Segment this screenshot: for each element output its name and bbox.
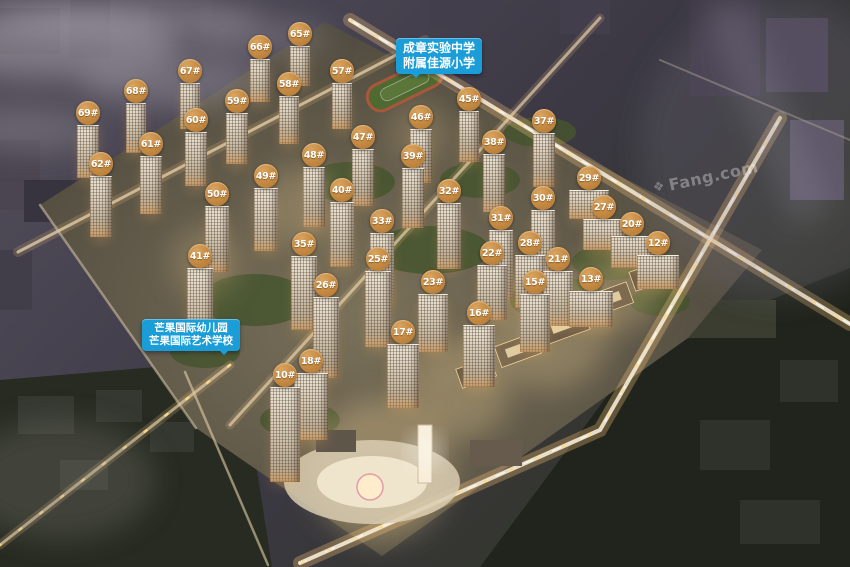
building-marker-46: 46#	[409, 105, 433, 129]
building-marker-66: 66#	[248, 35, 272, 59]
building-marker-38: 38#	[482, 130, 506, 154]
callout-school-west: 芒果国际幼儿园 芒果国际艺术学校	[142, 319, 240, 351]
building-marker-15: 15#	[523, 270, 547, 294]
building-marker-68: 68#	[124, 79, 148, 103]
building-marker-32: 32#	[437, 179, 461, 203]
building-marker-48: 48#	[302, 143, 326, 167]
building-marker-29: 29#	[577, 166, 601, 190]
building-marker-25: 25#	[366, 247, 390, 271]
building-marker-57: 57#	[330, 59, 354, 83]
building-marker-67: 67#	[178, 59, 202, 83]
masterplan-rendering[interactable]: 65#66#67#57#58#68#45#59#69#46#60#37#47#3…	[0, 0, 850, 567]
building-marker-35: 35#	[292, 232, 316, 256]
building-marker-28: 28#	[518, 231, 542, 255]
building-marker-58: 58#	[277, 72, 301, 96]
building-marker-12: 12#	[646, 231, 670, 255]
building-marker-21: 21#	[546, 247, 570, 271]
building-marker-60: 60#	[184, 108, 208, 132]
fang-logo-icon: ❖	[652, 179, 667, 196]
building-marker-17: 17#	[391, 320, 415, 344]
building-marker-40: 40#	[330, 178, 354, 202]
building-marker-27: 27#	[592, 195, 616, 219]
callout-line: 成章实验中学	[403, 41, 475, 56]
building-marker-50: 50#	[205, 182, 229, 206]
callout-line: 芒果国际幼儿园	[149, 322, 233, 335]
building-marker-18: 18#	[299, 349, 323, 373]
building-marker-65: 65#	[288, 22, 312, 46]
building-marker-16: 16#	[467, 301, 491, 325]
building-marker-23: 23#	[421, 270, 445, 294]
building-marker-20: 20#	[620, 212, 644, 236]
building-marker-39: 39#	[401, 144, 425, 168]
building-marker-26: 26#	[314, 273, 338, 297]
building-marker-30: 30#	[531, 186, 555, 210]
building-marker-31: 31#	[489, 206, 513, 230]
building-marker-59: 59#	[225, 89, 249, 113]
building-marker-45: 45#	[457, 87, 481, 111]
callout-line: 芒果国际艺术学校	[149, 335, 233, 348]
building-marker-69: 69#	[76, 101, 100, 125]
building-marker-22: 22#	[480, 241, 504, 265]
callout-school-north: 成章实验中学 附属佳源小学	[396, 38, 482, 74]
building-marker-49: 49#	[254, 164, 278, 188]
building-marker-10: 10#	[273, 363, 297, 387]
building-marker-33: 33#	[370, 209, 394, 233]
building-marker-41: 41#	[188, 244, 212, 268]
building-marker-37: 37#	[532, 109, 556, 133]
callout-line: 附属佳源小学	[403, 56, 475, 71]
building-marker-47: 47#	[351, 125, 375, 149]
building-markers: 65#66#67#57#58#68#45#59#69#46#60#37#47#3…	[0, 0, 850, 567]
building-marker-61: 61#	[139, 132, 163, 156]
building-marker-62: 62#	[89, 152, 113, 176]
building-marker-13: 13#	[579, 267, 603, 291]
